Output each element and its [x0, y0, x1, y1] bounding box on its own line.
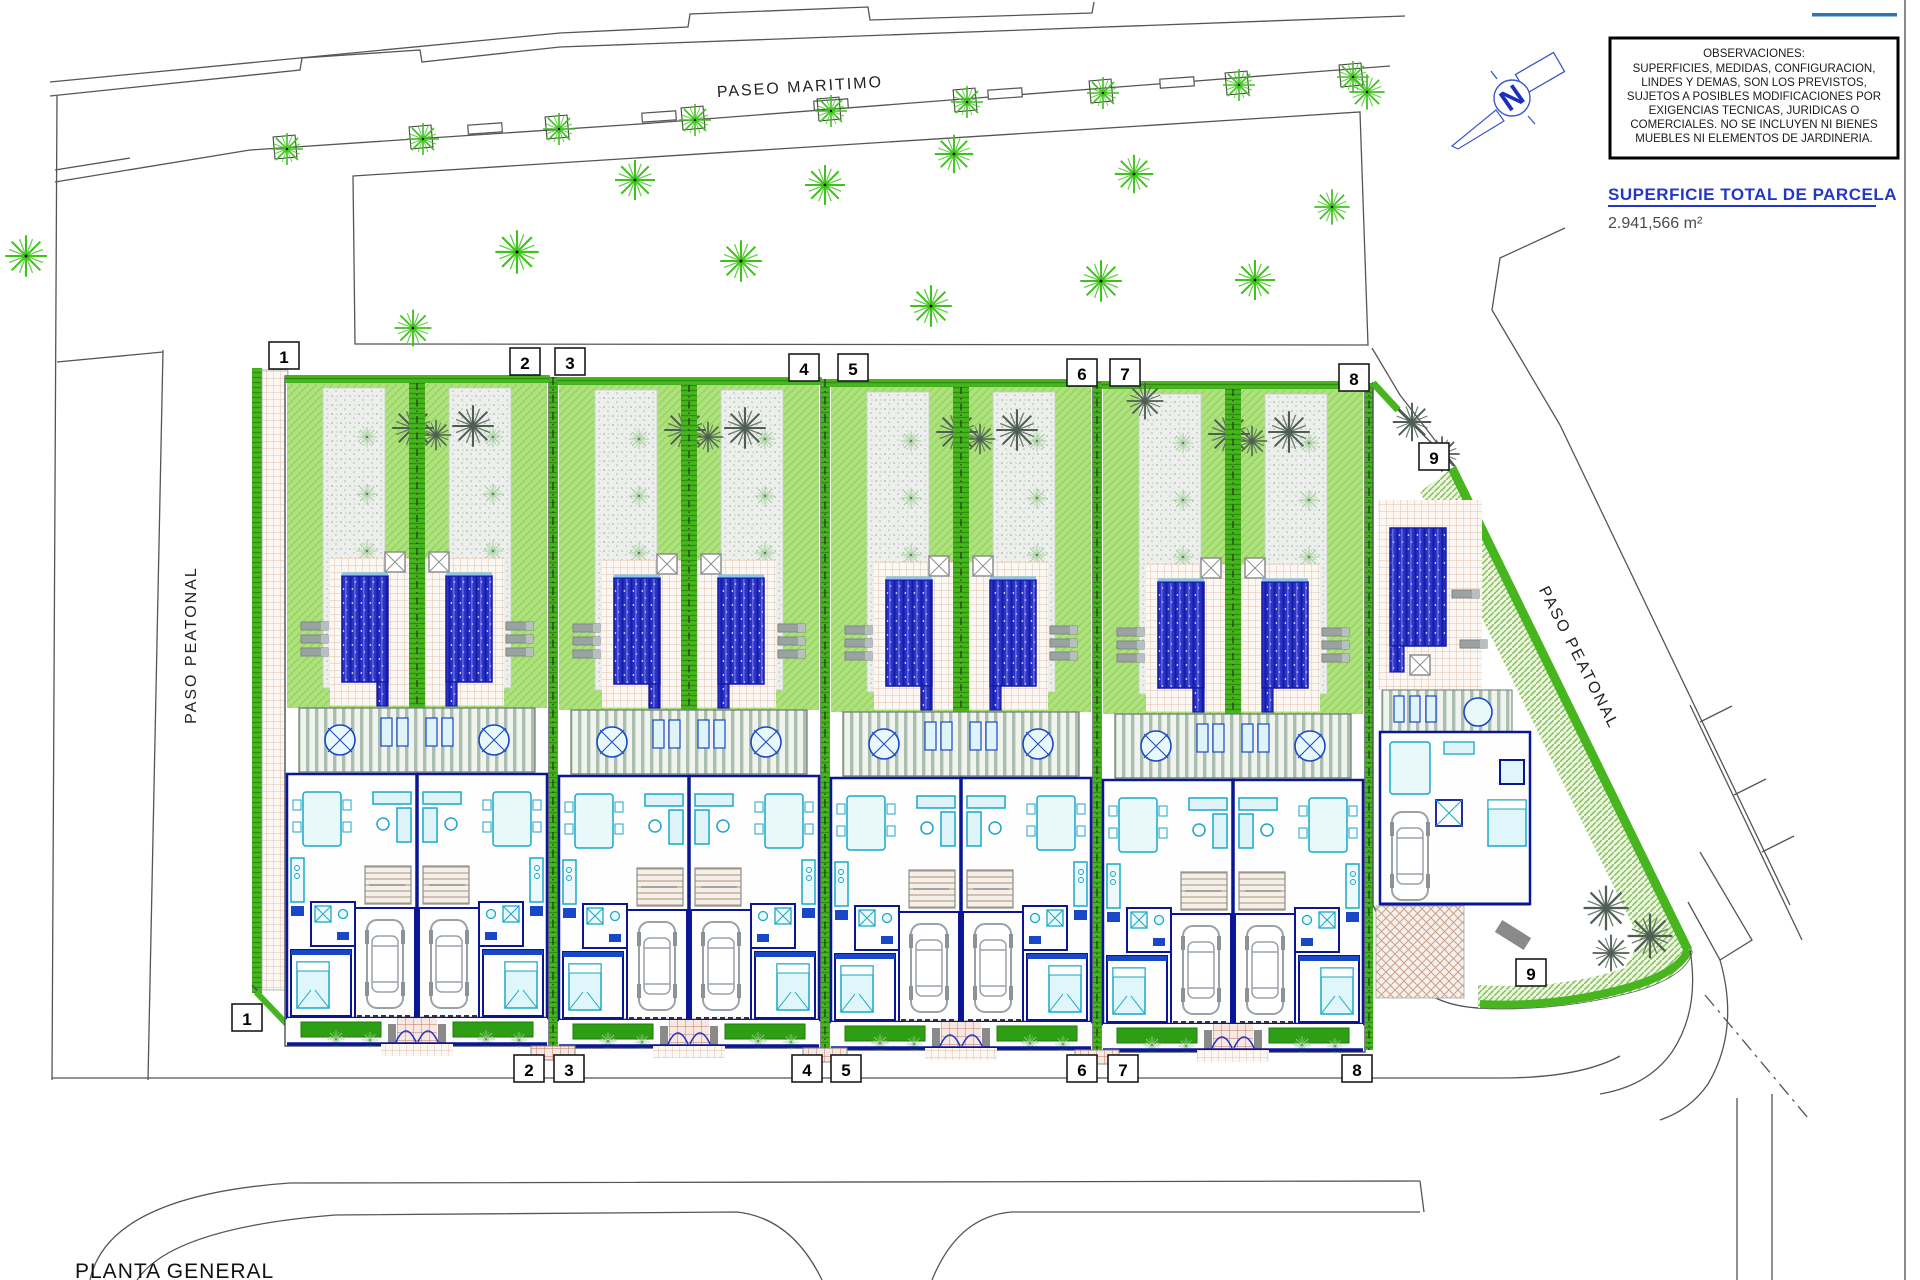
observaciones-line: COMERCIALES. NO SE INCLUYEN NI BIENES [1630, 119, 1878, 131]
paseo-maritimo-label: PASEO MARITIMO [716, 74, 883, 101]
plate-top-1: 1 [279, 348, 288, 367]
observaciones-line: LINDES Y DEMAS, SON LOS PREVISTOS, [1641, 77, 1867, 89]
plate-bottom-2: 2 [524, 1061, 533, 1080]
plate-top-5: 5 [848, 360, 857, 379]
plate-bottom-6: 6 [1077, 1061, 1086, 1080]
park-strip [5, 112, 1368, 346]
plate-bottom-3: 3 [564, 1061, 573, 1080]
observaciones-title: OBSERVACIONES: [1703, 48, 1805, 60]
site-plan-drawing: PASEO MARITIMO PASO PEATONAL [0, 0, 1920, 1280]
plate-top-8: 8 [1349, 370, 1358, 389]
plate-top-9: 9 [1429, 449, 1438, 468]
title-block: OBSERVACIONES: SUPERFICIES, MEDIDAS, CON… [1608, 0, 1905, 1280]
planta-general-label: PLANTA GENERAL [75, 1260, 274, 1280]
plate-bottom-1: 1 [242, 1010, 251, 1029]
north-compass: N [1452, 52, 1565, 149]
villa-pair-4 [1101, 382, 1365, 1054]
left-road [52, 96, 163, 1080]
plate-bottom-7: 7 [1118, 1061, 1127, 1080]
superficie-total-value: 2.941,566 m² [1608, 215, 1703, 232]
accent-line [1812, 13, 1897, 17]
plate-bottom-5: 5 [841, 1061, 850, 1080]
villa-pair-3 [829, 380, 1093, 1052]
plate-top-6: 6 [1077, 365, 1086, 384]
parcel [252, 368, 1373, 1064]
plate-top-7: 7 [1120, 365, 1129, 384]
paso-peatonal-left-label: PASO PEATONAL [183, 566, 200, 724]
bottom-road [52, 1056, 1620, 1280]
plate-top-2: 2 [520, 354, 529, 373]
parcel-left-hedge [252, 368, 262, 993]
observaciones-line: SUPERFICIES, MEDIDAS, CONFIGURACION, [1633, 63, 1876, 75]
superficie-total-label: SUPERFICIE TOTAL DE PARCELA [1608, 185, 1897, 204]
observaciones-line: SUJETOS A POSIBLES MODIFICACIONES POR [1627, 91, 1881, 103]
plate-bottom-8: 8 [1352, 1061, 1361, 1080]
plate-bottom-9: 9 [1526, 965, 1535, 984]
villa-pair-1 [285, 376, 549, 1048]
observaciones-line: EXIGENCIAS TECNICAS, JURIDICAS O [1649, 105, 1860, 117]
plate-top-4: 4 [799, 360, 809, 379]
plate-bottom-4: 4 [802, 1061, 812, 1080]
villa-pair-2 [557, 378, 821, 1050]
observaciones-line: MUEBLES NI ELEMENTOS DE JARDINERIA. [1635, 133, 1873, 145]
plate-top-3: 3 [565, 354, 574, 373]
site-plan-sheet: PASEO MARITIMO PASO PEATONAL [0, 0, 1920, 1280]
